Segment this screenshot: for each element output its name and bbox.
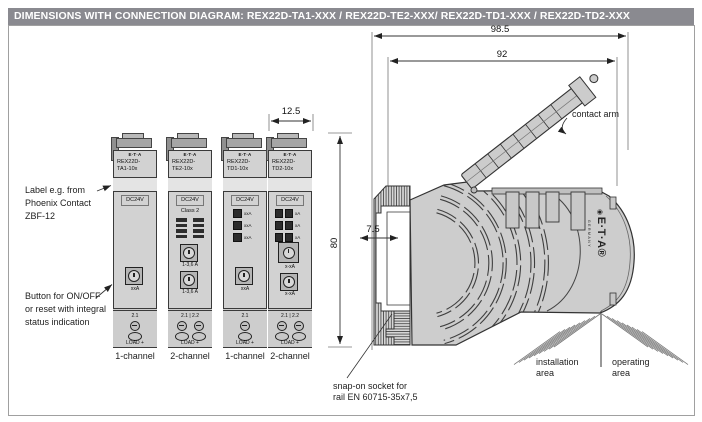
module-front: E·T·A REX22D- TD2-10x DC24V xA xA xA x-x… xyxy=(268,150,312,346)
button-knob xyxy=(283,247,295,259)
load-label: LOAD + xyxy=(113,340,157,346)
mounting-clip xyxy=(116,138,152,148)
module-front: E·T·A REX22D- TA1-10x DC24V xxA 2.1 LOAD… xyxy=(113,150,157,346)
voltage-label: DC24V xyxy=(176,195,204,206)
model-label: REX22D- TD2-10x xyxy=(272,159,295,172)
screw-terminal xyxy=(192,321,206,341)
label-strip xyxy=(268,177,312,192)
onoff-button xyxy=(180,244,198,262)
onoff-button xyxy=(180,271,198,289)
screw-terminal xyxy=(175,321,189,341)
voltage-label: DC24V xyxy=(231,195,259,206)
onoff-button xyxy=(280,273,298,291)
load-label: LOAD + xyxy=(168,340,212,346)
onoff-button xyxy=(278,242,299,263)
label-strip xyxy=(168,177,212,192)
terminal-block: 2.1 LOAD + xyxy=(223,308,267,348)
label-strip xyxy=(113,177,157,192)
terminal-block: 2.1 | 2.2 LOAD + xyxy=(168,308,212,348)
onoff-button xyxy=(125,267,143,285)
screw-terminal xyxy=(275,321,289,341)
voltage-label: DC24V xyxy=(121,195,149,206)
rating-label: xxA xyxy=(224,286,266,292)
onoff-button xyxy=(235,267,253,285)
load-label: LOAD + xyxy=(223,340,267,346)
model-label: REX22D- TE2-10x xyxy=(172,159,195,172)
button-knob xyxy=(238,270,250,282)
button-knob xyxy=(283,276,295,288)
datasheet-page: DIMENSIONS WITH CONNECTION DIAGRAM: REX2… xyxy=(0,0,702,422)
terminal-block: 2.1 LOAD + xyxy=(113,308,157,348)
led-indicators: xxA xxA xxA xyxy=(233,209,252,245)
model-label: REX22D- TA1-10x xyxy=(117,159,140,172)
screw-terminal xyxy=(292,321,306,341)
button-annotation: Button for ON/OFF or reset with integral… xyxy=(25,290,111,329)
label-annotation: Label e.g. from Phoenix Contact ZBF-12 xyxy=(25,184,95,223)
model-label: REX22D- TD1-10x xyxy=(227,159,250,172)
eta-logo: E·T·A xyxy=(269,152,311,157)
terminal-block: 2.1 | 2.2 LOAD + xyxy=(268,308,312,348)
channel-caption: 2-channel xyxy=(258,351,322,361)
button-knob xyxy=(128,270,140,282)
rating-label: x-xA xyxy=(269,291,311,297)
eta-logo: E·T·A xyxy=(224,152,266,157)
rating-label: x-xA xyxy=(269,264,311,270)
led-indicators xyxy=(176,218,204,238)
terminal-number: 2.1 xyxy=(223,313,267,319)
rating-label: 1-3,6 A xyxy=(169,289,211,295)
rating-label: 1-3,6 A xyxy=(169,262,211,268)
label-strip xyxy=(223,177,267,192)
button-knob xyxy=(183,247,195,259)
terminal-number: 2.1 | 2.2 xyxy=(168,313,212,319)
mounting-clip xyxy=(226,138,262,148)
terminal-number: 2.1 xyxy=(113,313,157,319)
voltage-label: DC24V xyxy=(276,195,304,206)
rating-label: xxA xyxy=(114,286,156,292)
mounting-clip xyxy=(171,138,207,148)
eta-logo: E·T·A xyxy=(114,152,156,157)
mounting-clip xyxy=(271,138,307,148)
module-front: E·T·A REX22D- TE2-10x DC24V Class 2 1-3,… xyxy=(168,150,212,346)
button-knob xyxy=(183,274,195,286)
led-indicators: xA xA xA xyxy=(275,209,300,245)
terminal-number: 2.1 | 2.2 xyxy=(268,313,312,319)
section-title: DIMENSIONS WITH CONNECTION DIAGRAM: REX2… xyxy=(14,10,630,22)
module-front: E·T·A REX22D- TD1-10x DC24V xxA xxA xxA … xyxy=(223,150,267,346)
class-label: Class 2 xyxy=(169,208,211,214)
eta-logo: E·T·A xyxy=(169,152,211,157)
screw-terminal xyxy=(238,321,252,341)
screw-terminal xyxy=(128,321,142,341)
section-title-bar: DIMENSIONS WITH CONNECTION DIAGRAM: REX2… xyxy=(8,8,694,25)
load-label: LOAD + xyxy=(268,340,312,346)
